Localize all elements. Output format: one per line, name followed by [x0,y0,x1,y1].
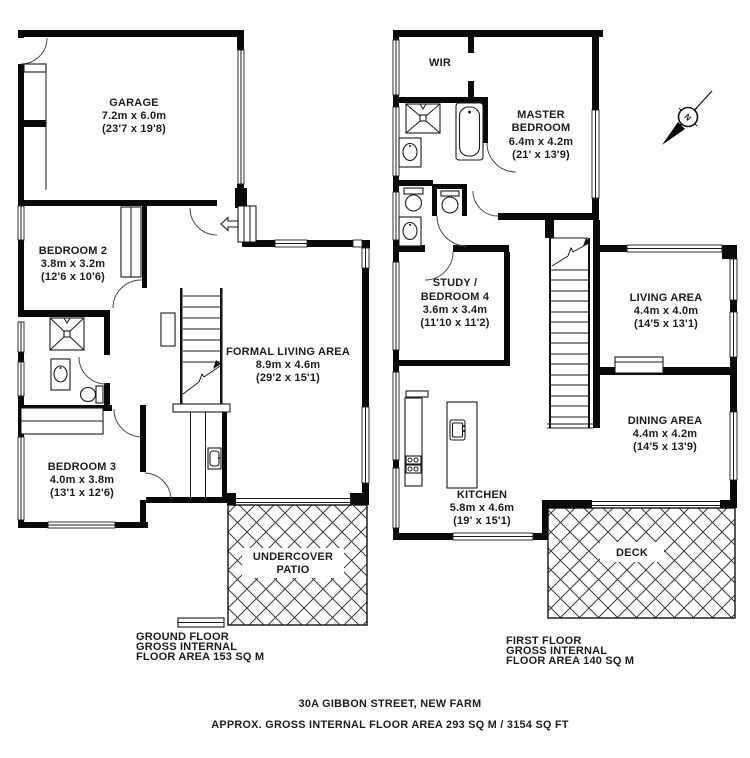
wir-name: WIR [429,57,451,69]
shower-icon [406,104,440,133]
address-line: 30A GIBBON STREET, NEW FARM [299,698,482,710]
dining-dim-metric: 4.4m x 4.2m [633,428,698,440]
sink-icon [51,359,70,390]
understair-fixture [208,448,221,469]
living-dim-metric: 4.4m x 4.0m [634,305,699,317]
study-name-line2: BEDROOM 4 [421,291,490,303]
living-name: LIVING AREA [630,292,703,304]
wir-label: WIR [429,57,451,69]
study-dim-imperial: (11'10 x 11'2) [420,317,489,329]
garage-dim-imperial: (23'7 x 19'8) [102,123,166,135]
bedroom3-dim-metric: 4.0m x 3.8m [50,474,115,486]
entry-steps [238,206,256,242]
patio-name-line1: UNDERCOVER [253,551,333,563]
formal-living-dim-metric: 8.9m x 4.6m [256,359,321,371]
dining-name: DINING AREA [628,415,703,427]
bedroom3-name: BEDROOM 3 [48,461,116,473]
deck-name: DECK [616,547,648,559]
deck-label: DECK [616,547,648,559]
ground-summary-line3: FLOOR AREA 153 SQ M [136,651,264,663]
living-cabinet [615,357,663,373]
cooktop-icon [406,456,421,473]
shower-icon [50,318,84,350]
master-name-line2: BEDROOM [512,122,571,134]
bedroom2-name: BEDROOM 2 [39,245,107,257]
garage-name: GARAGE [109,97,158,109]
garage-dim-metric: 7.2m x 6.0m [102,110,167,122]
kitchen-label: KITCHEN 5.8m x 4.6m (19' x 15'1) [450,489,515,527]
study-name-line1: STUDY / [433,277,478,289]
sink-icon [399,138,421,167]
bedroom3-dim-imperial: (13'1 x 12'6) [50,487,114,499]
living-dim-imperial: (14'5 x 13'1) [634,318,698,330]
garage-label: GARAGE 7.2m x 6.0m (23'7 x 19'8) [102,97,167,135]
first-summary-line3: FLOOR AREA 140 SQ M [506,655,634,667]
floor-plan-page: GARAGE 7.2m x 6.0m (23'7 x 19'8) BEDROOM… [0,0,750,758]
bedroom3-label: BEDROOM 3 4.0m x 3.8m (13'1 x 12'6) [48,461,116,499]
patio-step [178,618,224,627]
living-area-label: LIVING AREA 4.4m x 4.0m (14'5 x 13'1) [630,292,703,330]
toilet-icon [404,188,423,211]
total-area-line: APPROX. GROSS INTERNAL FLOOR AREA 293 SQ… [211,719,569,731]
dining-dim-imperial: (14'5 x 13'9) [633,441,697,453]
patio-name-line2: PATIO [277,564,310,576]
toilet-icon [81,386,104,403]
bedroom2-dim-metric: 3.8m x 3.2m [41,258,106,270]
floor-plan-canvas: GARAGE 7.2m x 6.0m (23'7 x 19'8) BEDROOM… [0,0,750,758]
master-name-line1: MASTER [517,109,565,121]
formal-living-dim-imperial: (29'2 x 15'1) [256,372,320,384]
kitchen-dim-metric: 5.8m x 4.6m [450,502,515,514]
master-dim-metric: 6.4m x 4.2m [509,136,574,148]
sink-icon [399,217,421,246]
bedroom2-dim-imperial: (12'6 x 10'6) [41,271,105,283]
master-dim-imperial: (21' x 13'9) [512,149,570,161]
toilet-icon [441,191,459,213]
formal-living-name: FORMAL LIVING AREA [226,346,350,358]
bedroom2-robe [121,207,141,277]
deck-area [548,508,735,618]
bathtub-icon [456,103,483,160]
island-bench [447,402,477,488]
bedroom2-label: BEDROOM 2 3.8m x 3.2m (12'6 x 10'6) [39,245,107,283]
dining-area-label: DINING AREA 4.4m x 4.2m (14'5 x 13'9) [628,415,703,453]
study-dim-metric: 3.6m x 3.4m [423,304,488,316]
kitchen-dim-imperial: (19' x 15'1) [453,515,511,527]
kitchen-name: KITCHEN [457,489,507,501]
bedroom3-robe [21,408,103,434]
